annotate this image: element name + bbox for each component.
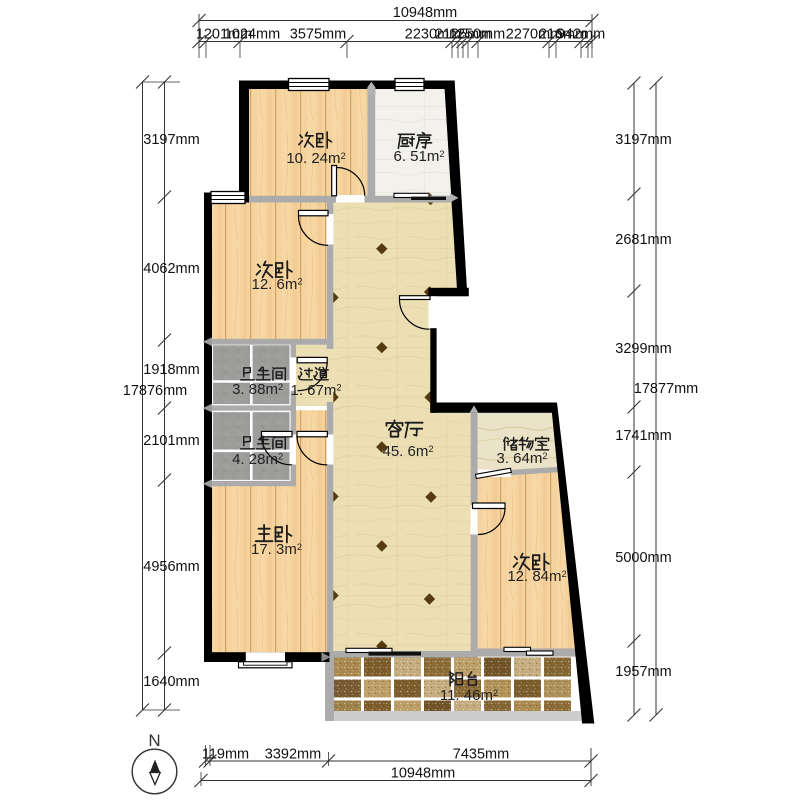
svg-text:1640mm: 1640mm [143, 674, 199, 690]
svg-text:12. 6m2: 12. 6m2 [251, 276, 302, 293]
svg-text:11. 46m2: 11. 46m2 [440, 687, 498, 704]
svg-text:3299mm: 3299mm [615, 341, 671, 357]
svg-text:10948mm: 10948mm [391, 766, 455, 782]
svg-text:4956mm: 4956mm [143, 559, 199, 575]
svg-text:2681mm: 2681mm [615, 232, 671, 248]
svg-text:3197mm: 3197mm [143, 132, 199, 148]
svg-text:17876mm: 17876mm [123, 383, 187, 399]
svg-text:17. 3m2: 17. 3m2 [251, 541, 302, 558]
svg-text:17877mm: 17877mm [634, 381, 698, 397]
svg-text:3197mm: 3197mm [615, 132, 671, 148]
svg-text:4062mm: 4062mm [143, 261, 199, 277]
svg-text:7435mm: 7435mm [453, 747, 509, 763]
svg-text:N: N [148, 731, 160, 750]
svg-text:1957mm: 1957mm [615, 664, 671, 680]
svg-text:1741mm: 1741mm [615, 428, 671, 444]
svg-text:1. 67m2: 1. 67m2 [290, 382, 341, 399]
svg-text:3392mm: 3392mm [265, 747, 321, 763]
svg-text:12. 84m2: 12. 84m2 [507, 568, 566, 585]
svg-text:119mm: 119mm [202, 747, 249, 763]
svg-text:1918mm: 1918mm [143, 362, 199, 378]
svg-text:3575mm: 3575mm [290, 27, 346, 43]
svg-text:6. 51m2: 6. 51m2 [393, 148, 444, 165]
svg-text:942mm: 942mm [557, 27, 605, 43]
svg-text:4. 28m2: 4. 28m2 [232, 451, 283, 468]
svg-text:1250mm: 1250mm [449, 27, 505, 43]
svg-text:3. 88m2: 3. 88m2 [232, 381, 283, 398]
svg-text:45. 6m2: 45. 6m2 [382, 443, 433, 460]
svg-text:5000mm: 5000mm [615, 550, 671, 566]
svg-text:2101mm: 2101mm [143, 433, 199, 449]
svg-text:1024mm: 1024mm [224, 27, 280, 43]
svg-text:10948mm: 10948mm [393, 5, 457, 21]
svg-text:3. 64m2: 3. 64m2 [496, 450, 547, 467]
svg-text:10. 24m2: 10. 24m2 [286, 150, 345, 167]
